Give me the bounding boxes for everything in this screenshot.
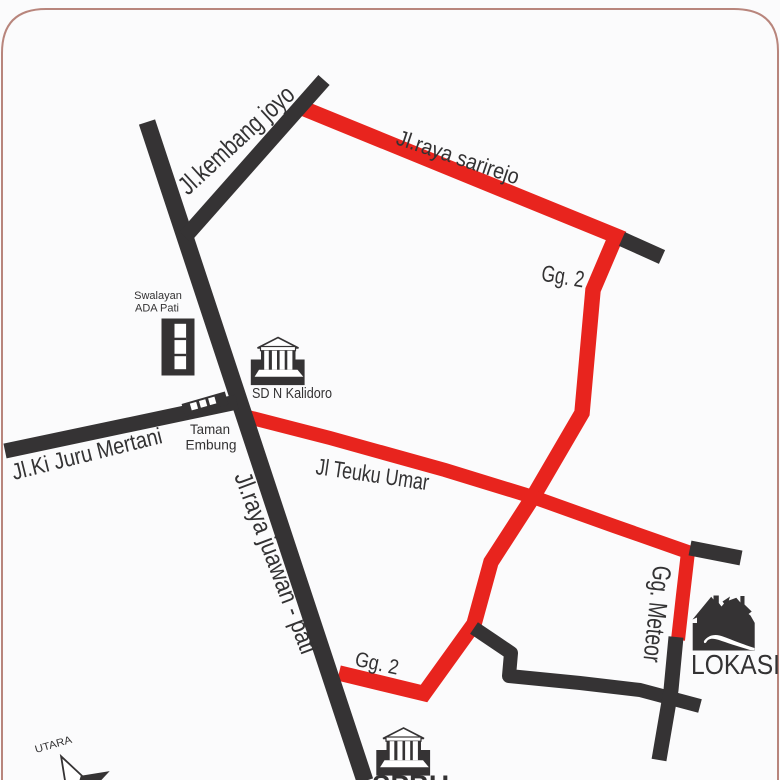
svg-text:ADA Pati: ADA Pati bbox=[135, 303, 179, 315]
svg-text:Taman: Taman bbox=[190, 421, 230, 437]
svg-text:LOKASI: LOKASI bbox=[691, 649, 780, 680]
svg-text:SPBU: SPBU bbox=[372, 770, 449, 780]
svg-text:SD N Kalidoro: SD N Kalidoro bbox=[252, 386, 332, 402]
svg-text:Swalayan: Swalayan bbox=[134, 290, 182, 302]
svg-text:Embung: Embung bbox=[186, 437, 237, 453]
